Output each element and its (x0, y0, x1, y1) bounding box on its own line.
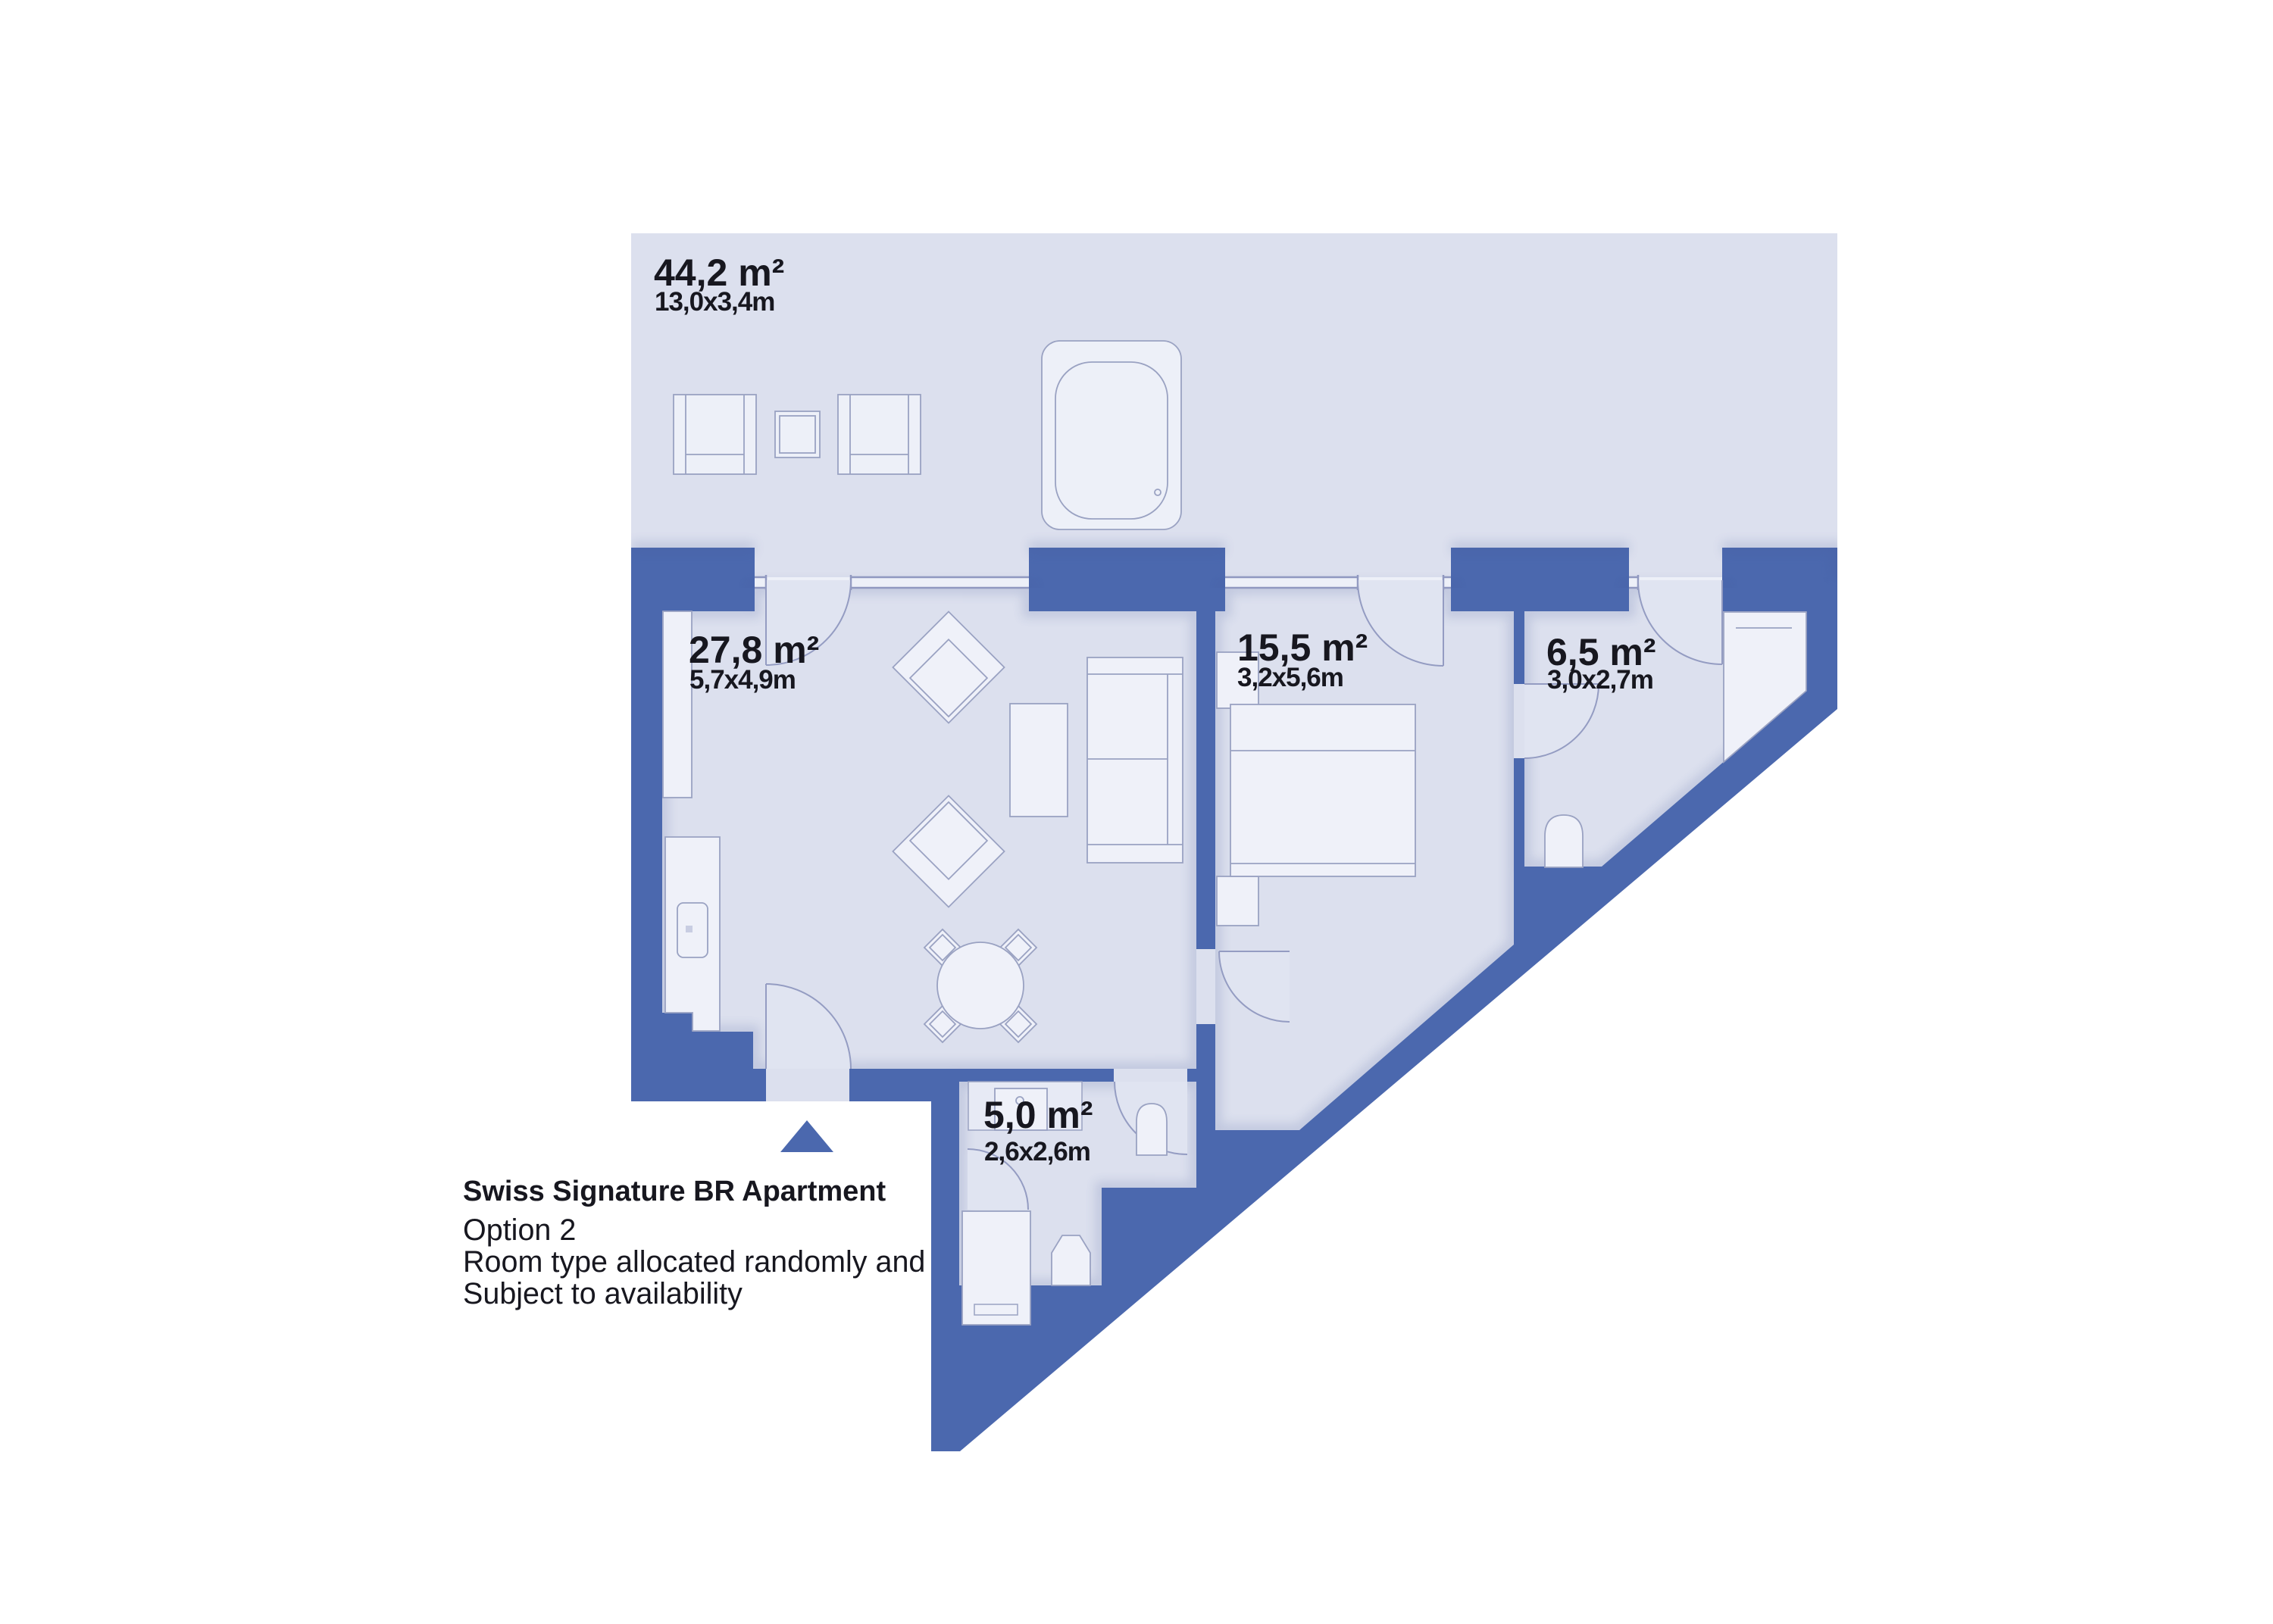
svg-text:Option 2: Option 2 (463, 1213, 576, 1247)
svg-text:Swiss Signature BR Apartment: Swiss Signature BR Apartment (463, 1176, 886, 1207)
svg-text:13,0x3,4m: 13,0x3,4m (655, 287, 774, 317)
svg-text:Subject to availability: Subject to availability (463, 1277, 743, 1310)
svg-text:Room type allocated randomly a: Room type allocated randomly and (463, 1245, 925, 1279)
svg-text:3,2x5,6m: 3,2x5,6m (1237, 663, 1343, 692)
svg-text:2,6x2,6m: 2,6x2,6m (984, 1137, 1090, 1166)
svg-text:5,0 m²: 5,0 m² (983, 1094, 1093, 1136)
svg-text:3,0x2,7m: 3,0x2,7m (1547, 665, 1653, 695)
svg-text:5,7x4,9m: 5,7x4,9m (689, 665, 796, 695)
